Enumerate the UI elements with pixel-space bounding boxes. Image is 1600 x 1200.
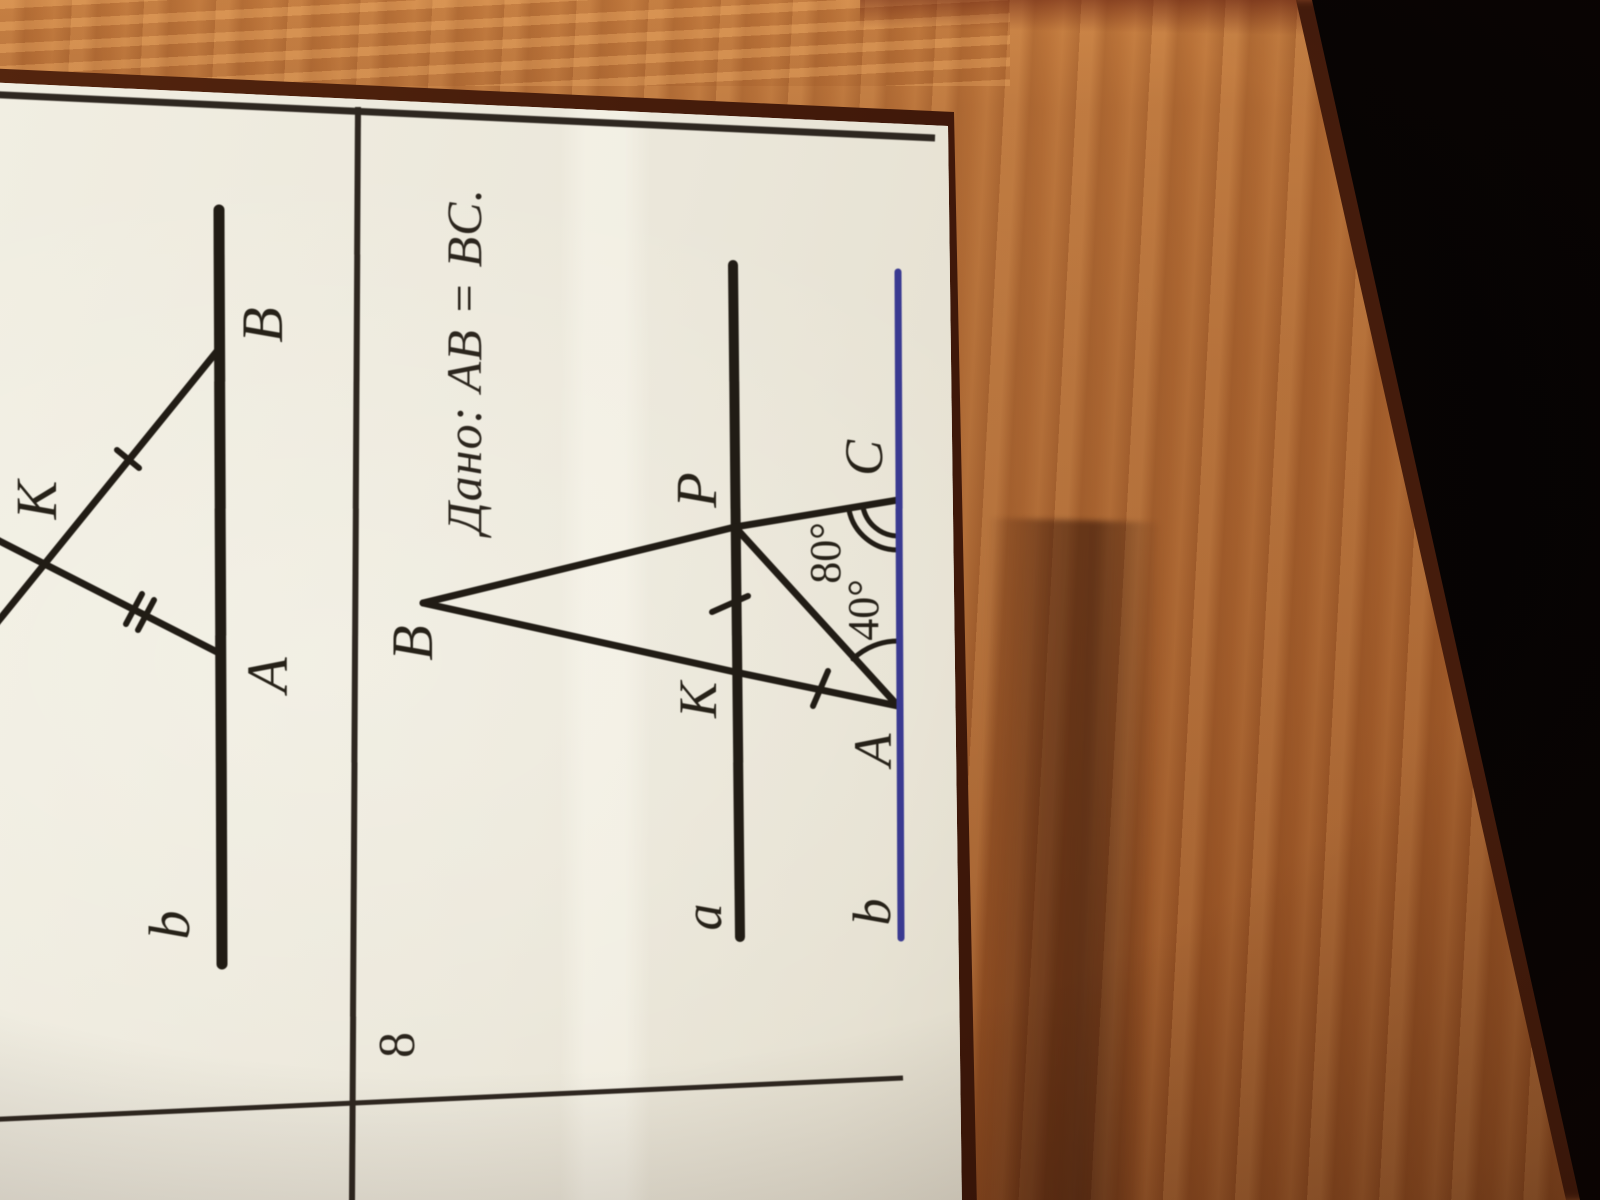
p8-label-point-A: A bbox=[846, 734, 900, 767]
p8-angle-value-80: 80° bbox=[804, 522, 848, 584]
p8-label-line-b: b bbox=[845, 899, 899, 926]
p8-label-line-a: a bbox=[676, 904, 730, 931]
p7-label-line-b: b bbox=[141, 911, 199, 940]
photo-scene: b A B K 8 Дано: AB = BC. B P K A C a b 8… bbox=[0, 0, 1600, 1200]
wood-grain-dark-band bbox=[969, 518, 1162, 1200]
p7-label-point-A: A bbox=[239, 657, 297, 692]
p7-line-b bbox=[219, 210, 222, 964]
p8-label-point-K: K bbox=[671, 682, 725, 718]
p8-angle-arc-A bbox=[853, 641, 898, 659]
grid-left-border-line bbox=[0, 1078, 903, 1121]
p8-angle-arc-C-inner bbox=[863, 507, 898, 536]
p8-line-b-blue bbox=[898, 272, 901, 938]
p8-tick-KP bbox=[712, 596, 748, 612]
problem8-figure bbox=[423, 265, 901, 938]
p8-angle-value-40: 40° bbox=[842, 579, 886, 641]
p7-label-point-B: B bbox=[234, 307, 292, 342]
worksheet-rotated-content: b A B K 8 Дано: AB = BC. B P K A C a b 8… bbox=[0, 0, 1000, 1200]
grid-row-separator-line bbox=[352, 107, 358, 1200]
p8-label-point-B: B bbox=[384, 625, 442, 660]
p7-label-point-K: K bbox=[8, 481, 66, 520]
p8-segment-B-K-A bbox=[423, 603, 898, 706]
problem7-figure bbox=[0, 210, 222, 964]
p8-label-point-P: P bbox=[668, 472, 726, 507]
p8-problem-number: 8 bbox=[372, 1032, 424, 1058]
p7-segment-AK-extended bbox=[0, 526, 219, 653]
wood-grain-top bbox=[0, 0, 1010, 86]
p8-angle-arc-C-outer bbox=[849, 510, 898, 550]
p8-given-text: Дано: AB = BC. bbox=[437, 188, 492, 534]
p8-label-point-C: C bbox=[837, 440, 891, 476]
